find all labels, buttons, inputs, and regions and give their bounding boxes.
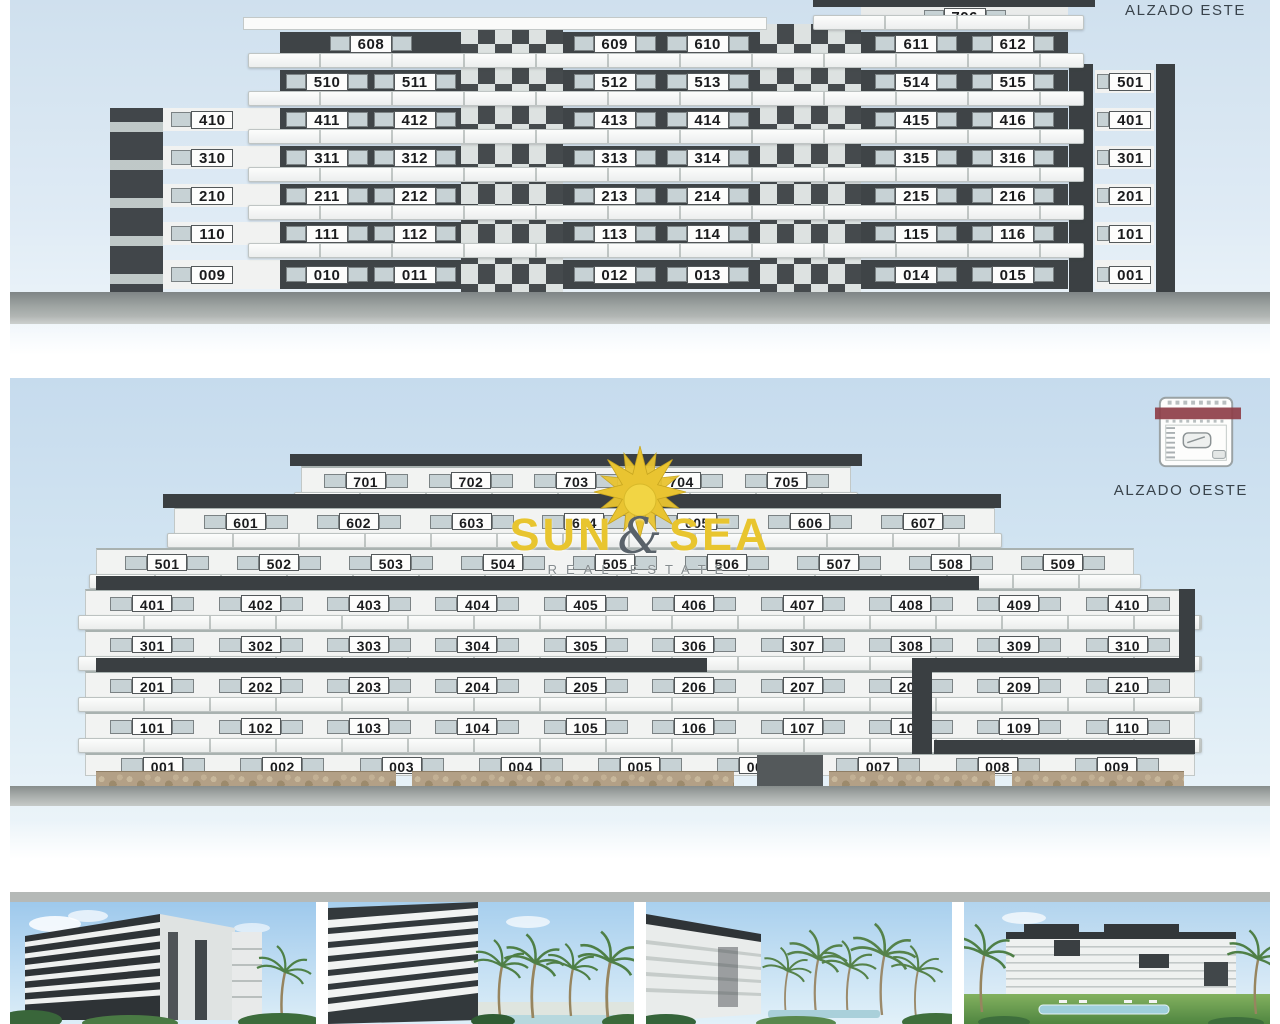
unit-508: 508 — [909, 554, 993, 571]
window-pane — [327, 679, 349, 693]
unit-number-plate: 116 — [992, 225, 1034, 243]
unit-number-plate: 315 — [895, 149, 937, 167]
unit-number-plate: 014 — [895, 266, 937, 284]
east-segment-left-wing: 608 — [280, 32, 461, 55]
unit-number-plate: 201 — [132, 677, 172, 694]
unit-105: 105 — [544, 718, 628, 735]
unit-number-plate: 601 — [226, 513, 266, 530]
window-pane — [386, 474, 408, 488]
unit-211: 211 — [286, 187, 368, 205]
window-pane — [636, 188, 656, 203]
east-segment-right-wing: 514515 — [861, 70, 1069, 93]
unit-104: 104 — [435, 718, 519, 735]
unit-210: 210 — [171, 187, 233, 205]
unit-number-plate: 013 — [687, 266, 729, 284]
window-pane — [172, 597, 194, 611]
unit-number-plate: 415 — [895, 111, 937, 129]
east-floor-H: 009010011012013014015001 — [110, 258, 1175, 292]
unit-303: 303 — [327, 636, 411, 653]
window-pane — [1083, 556, 1105, 570]
unit-number-plate: 513 — [687, 73, 729, 91]
unit-number-plate: 409 — [999, 595, 1039, 612]
unit-number-plate: 311 — [306, 149, 348, 167]
unit-number-plate: 510 — [306, 73, 348, 91]
window-pane — [1034, 226, 1054, 241]
window-pane — [667, 74, 687, 89]
east-floor-E: 310311312313314315316301 — [110, 144, 1175, 182]
east-segment-center: 113114 — [563, 222, 760, 245]
unit-number-plate: 101 — [132, 718, 172, 735]
window-pane — [1097, 267, 1109, 282]
window-pane — [219, 638, 241, 652]
unit-number-plate: 416 — [992, 111, 1034, 129]
window-pane — [598, 758, 620, 772]
window-pane — [931, 720, 953, 734]
east-elevation-title: ALZADO ESTE — [1125, 2, 1246, 19]
unit-304: 304 — [435, 636, 519, 653]
window-pane — [931, 679, 953, 693]
unit-305: 305 — [544, 636, 628, 653]
window-pane — [389, 638, 411, 652]
unit-205: 205 — [544, 677, 628, 694]
unit-503: 503 — [349, 554, 433, 571]
window-pane — [869, 679, 891, 693]
unit-216: 216 — [972, 187, 1054, 205]
render-photo-garden-view — [646, 902, 952, 1024]
unit-114: 114 — [667, 225, 749, 243]
unit-number-plate: 411 — [306, 111, 348, 129]
window-pane — [652, 638, 674, 652]
unit-706: 706 — [924, 8, 1006, 26]
unit-number-plate: 009 — [191, 266, 233, 284]
unit-301: 301 — [110, 636, 194, 653]
unit-number-plate: 609 — [594, 35, 636, 53]
unit-number-plate: 308 — [891, 636, 931, 653]
unit-203: 203 — [327, 677, 411, 694]
unit-number-plate: 408 — [891, 595, 931, 612]
unit-number-plate: 012 — [594, 266, 636, 284]
window-pane — [574, 74, 594, 89]
window-pane — [497, 638, 519, 652]
window-pane — [875, 267, 895, 282]
unit-number-plate: 213 — [594, 187, 636, 205]
unit-number-plate: 404 — [457, 595, 497, 612]
window-pane — [972, 74, 992, 89]
window-pane — [436, 74, 456, 89]
unit-number-plate: 207 — [783, 677, 823, 694]
window-pane — [1075, 758, 1097, 772]
window-pane — [1097, 226, 1109, 241]
window-pane — [1097, 188, 1109, 203]
unit-number-plate: 001 — [1109, 266, 1151, 284]
window-pane — [836, 758, 858, 772]
unit-number-plate: 512 — [594, 73, 636, 91]
unit-number-plate: 010 — [306, 266, 348, 284]
unit-number-plate: 509 — [1043, 554, 1083, 571]
east-elevation-panel: ALZADO ESTE 7066086096106116125105115125… — [10, 0, 1270, 362]
window-pane — [430, 515, 452, 529]
unit-number-plate: 303 — [349, 636, 389, 653]
west-ground-fade — [10, 820, 1270, 866]
west-floor-2: 201202203204205206207208209210 — [85, 671, 1195, 712]
window-pane — [937, 226, 957, 241]
unit-number-plate: 203 — [349, 677, 389, 694]
window-pane — [110, 638, 132, 652]
window-pane — [1097, 112, 1109, 127]
unit-402: 402 — [219, 595, 303, 612]
unit-number-plate: 310 — [1108, 636, 1148, 653]
window-pane — [429, 474, 451, 488]
window-pane — [972, 112, 992, 127]
unit-213: 213 — [574, 187, 656, 205]
unit-405: 405 — [544, 595, 628, 612]
window-pane — [667, 188, 687, 203]
window-pane — [574, 36, 594, 51]
unit-number-plate: 502 — [259, 554, 299, 571]
unit-215: 215 — [875, 187, 957, 205]
east-segment-left-tower: 310 — [163, 146, 288, 169]
unit-number-plate: 406 — [674, 595, 714, 612]
window-pane — [807, 474, 829, 488]
east-segment-right-wing: 415416 — [861, 108, 1069, 131]
window-pane — [281, 720, 303, 734]
unit-number-plate: 215 — [895, 187, 937, 205]
window-pane — [636, 74, 656, 89]
window-pane — [299, 556, 321, 570]
unit-number-plate: 114 — [687, 225, 729, 243]
west-floor-face: 201202203204205206207208209210 — [85, 671, 1195, 699]
unit-608: 608 — [330, 35, 412, 53]
window-pane — [1148, 679, 1170, 693]
east-segment-left-wing: 211212 — [280, 184, 461, 207]
window-pane — [436, 267, 456, 282]
east-segment-center: 609610 — [563, 32, 760, 55]
window-pane — [219, 679, 241, 693]
window-pane — [729, 226, 749, 241]
unit-202: 202 — [219, 677, 303, 694]
west-dark-band-2-right — [912, 658, 1195, 672]
window-pane — [379, 515, 401, 529]
unit-number-plate: 105 — [566, 718, 606, 735]
window-pane — [977, 720, 999, 734]
exterior-render-photos — [10, 902, 1270, 1024]
unit-number-plate: 702 — [451, 472, 491, 489]
window-pane — [667, 226, 687, 241]
window-pane — [636, 36, 656, 51]
unit-110: 110 — [1086, 718, 1170, 735]
east-segment-right-wing: 611612 — [861, 32, 1069, 55]
unit-701: 701 — [324, 472, 408, 489]
unit-415: 415 — [875, 111, 957, 129]
window-pane — [729, 112, 749, 127]
window-pane — [875, 36, 895, 51]
window-pane — [606, 638, 628, 652]
unit-number-plate: 102 — [241, 718, 281, 735]
window-pane — [240, 758, 262, 772]
window-pane — [281, 679, 303, 693]
unit-014: 014 — [875, 266, 957, 284]
balcony-slab — [78, 697, 1202, 712]
unit-410: 410 — [171, 111, 233, 129]
window-pane — [1018, 758, 1040, 772]
west-right-edge-band — [1179, 589, 1195, 672]
unit-514: 514 — [875, 73, 957, 91]
logo-wordmark: SUN&SEA — [490, 508, 790, 558]
east-segment-right-tower: 101 — [1095, 222, 1154, 245]
window-pane — [544, 720, 566, 734]
window-pane — [348, 112, 368, 127]
window-pane — [729, 36, 749, 51]
unit-407: 407 — [761, 595, 845, 612]
unit-number-plate: 113 — [594, 225, 636, 243]
east-segment-right-tower: 001 — [1095, 260, 1154, 289]
unit-number-plate: 401 — [132, 595, 172, 612]
east-floor-G: 110111112113114115116101 — [110, 220, 1175, 258]
unit-301: 301 — [1097, 149, 1151, 167]
window-pane — [497, 597, 519, 611]
window-pane — [1097, 74, 1109, 89]
unit-number-plate: 305 — [566, 636, 606, 653]
window-pane — [544, 638, 566, 652]
unit-number-plate: 607 — [903, 513, 943, 530]
window-pane — [172, 638, 194, 652]
window-pane — [977, 597, 999, 611]
unit-507: 507 — [797, 554, 881, 571]
east-segment-left-tower: 410 — [163, 108, 288, 131]
unit-number-plate: 115 — [895, 225, 937, 243]
east-segment-center: 413414 — [563, 108, 760, 131]
unit-number-plate: 515 — [992, 73, 1034, 91]
east-ground-fade — [10, 316, 1270, 362]
window-pane — [327, 720, 349, 734]
unit-011: 011 — [374, 266, 456, 284]
logo-word-sun: SUN — [509, 509, 613, 560]
unit-010: 010 — [286, 266, 368, 284]
west-floor-4: 401402403404405406407408409410 — [85, 589, 1195, 630]
unit-number-plate: 309 — [999, 636, 1039, 653]
unit-111: 111 — [286, 225, 368, 243]
window-pane — [636, 150, 656, 165]
window-pane — [281, 597, 303, 611]
unit-009: 009 — [171, 266, 233, 284]
unit-number-plate: 316 — [992, 149, 1034, 167]
window-pane — [436, 150, 456, 165]
window-pane — [574, 188, 594, 203]
window-pane — [436, 226, 456, 241]
unit-316: 316 — [972, 149, 1054, 167]
window-pane — [1039, 638, 1061, 652]
window-pane — [286, 150, 306, 165]
window-pane — [667, 112, 687, 127]
window-pane — [479, 758, 501, 772]
window-pane — [435, 720, 457, 734]
window-pane — [636, 267, 656, 282]
window-pane — [183, 758, 205, 772]
unit-number-plate: 301 — [132, 636, 172, 653]
window-pane — [1039, 679, 1061, 693]
window-pane — [110, 597, 132, 611]
unit-612: 612 — [972, 35, 1054, 53]
window-pane — [436, 112, 456, 127]
unit-number-plate: 307 — [783, 636, 823, 653]
window-pane — [392, 36, 412, 51]
unit-number-plate: 413 — [594, 111, 636, 129]
window-pane — [281, 638, 303, 652]
window-pane — [972, 226, 992, 241]
unit-number-plate: 407 — [783, 595, 823, 612]
unit-number-plate: 205 — [566, 677, 606, 694]
window-pane — [1148, 720, 1170, 734]
unit-number-plate: 610 — [687, 35, 729, 53]
window-pane — [761, 597, 783, 611]
unit-208: 208 — [869, 677, 953, 694]
render-photo-corner-view — [10, 902, 316, 1024]
unit-409: 409 — [977, 595, 1061, 612]
unit-311: 311 — [286, 149, 368, 167]
window-pane — [171, 226, 191, 241]
unit-602: 602 — [317, 513, 401, 530]
window-pane — [286, 74, 306, 89]
window-pane — [823, 597, 845, 611]
window-pane — [937, 74, 957, 89]
window-pane — [204, 515, 226, 529]
unit-number-plate: 201 — [1109, 187, 1151, 205]
unit-number-plate: 412 — [394, 111, 436, 129]
west-dark-band-4 — [96, 576, 978, 590]
unit-number-plate: 701 — [346, 472, 386, 489]
east-segment-center: 012013 — [563, 260, 760, 289]
unit-201: 201 — [110, 677, 194, 694]
unit-number-plate: 501 — [147, 554, 187, 571]
east-segment-left-wing: 411412 — [280, 108, 461, 131]
window-pane — [374, 112, 394, 127]
unit-501: 501 — [1097, 73, 1151, 91]
unit-209: 209 — [977, 677, 1061, 694]
unit-309: 309 — [977, 636, 1061, 653]
photo-strip-divider — [10, 892, 1270, 902]
window-pane — [909, 556, 931, 570]
window-pane — [924, 10, 944, 25]
east-roof-slab — [243, 17, 767, 30]
unit-102: 102 — [219, 718, 303, 735]
east-segment-right-tower: 401 — [1095, 108, 1154, 131]
window-pane — [667, 36, 687, 51]
window-pane — [172, 720, 194, 734]
unit-number-plate: 706 — [944, 8, 986, 26]
window-pane — [171, 188, 191, 203]
window-pane — [1021, 556, 1043, 570]
unit-number-plate: 216 — [992, 187, 1034, 205]
unit-number-plate: 110 — [191, 225, 233, 243]
unit-212: 212 — [374, 187, 456, 205]
unit-number-plate: 603 — [452, 513, 492, 530]
unit-413: 413 — [574, 111, 656, 129]
window-pane — [956, 758, 978, 772]
window-pane — [544, 597, 566, 611]
unit-012: 012 — [574, 266, 656, 284]
unit-number-plate: 306 — [674, 636, 714, 653]
window-pane — [931, 597, 953, 611]
east-floor-rows: 7066086096106116125105115125135145155014… — [110, 0, 1175, 292]
window-pane — [574, 150, 594, 165]
window-pane — [729, 188, 749, 203]
window-pane — [348, 267, 368, 282]
window-pane — [435, 597, 457, 611]
unit-609: 609 — [574, 35, 656, 53]
east-segment-right-wing: 115116 — [861, 222, 1069, 245]
window-pane — [937, 36, 957, 51]
unit-115: 115 — [875, 225, 957, 243]
window-pane — [606, 597, 628, 611]
east-segment-left-tower: 009 — [163, 260, 288, 289]
unit-310: 310 — [171, 149, 233, 167]
unit-112: 112 — [374, 225, 456, 243]
window-pane — [286, 267, 306, 282]
window-pane — [869, 597, 891, 611]
unit-412: 412 — [374, 111, 456, 129]
unit-number-plate: 111 — [306, 225, 348, 243]
window-pane — [1086, 720, 1108, 734]
unit-number-plate: 302 — [241, 636, 281, 653]
unit-116: 116 — [972, 225, 1054, 243]
window-pane — [348, 226, 368, 241]
unit-406: 406 — [652, 595, 736, 612]
window-pane — [1086, 679, 1108, 693]
window-pane — [1034, 112, 1054, 127]
window-pane — [1137, 758, 1159, 772]
window-pane — [374, 150, 394, 165]
window-pane — [422, 758, 444, 772]
window-pane — [986, 10, 1006, 25]
window-pane — [714, 597, 736, 611]
window-pane — [937, 267, 957, 282]
unit-number-plate: 211 — [306, 187, 348, 205]
unit-315: 315 — [875, 149, 957, 167]
window-pane — [286, 226, 306, 241]
unit-number-plate: 204 — [457, 677, 497, 694]
unit-108: 108 — [869, 718, 953, 735]
window-pane — [636, 226, 656, 241]
unit-201: 201 — [1097, 187, 1151, 205]
unit-number-plate: 401 — [1109, 111, 1151, 129]
window-pane — [574, 112, 594, 127]
unit-number-plate: 501 — [1109, 73, 1151, 91]
unit-number-plate: 507 — [819, 554, 859, 571]
unit-number-plate: 310 — [191, 149, 233, 167]
unit-306: 306 — [652, 636, 736, 653]
east-segment-left-wing: 311312 — [280, 146, 461, 169]
east-segment-left-tower: 210 — [163, 184, 288, 207]
east-segment-right-tower: 501 — [1095, 70, 1154, 93]
unit-number-plate: 304 — [457, 636, 497, 653]
west-ground-line — [10, 786, 1270, 806]
window-pane — [435, 679, 457, 693]
unit-number-plate: 103 — [349, 718, 389, 735]
window-pane — [636, 112, 656, 127]
window-pane — [121, 758, 143, 772]
render-photo-balconies-palms — [328, 902, 634, 1024]
window-pane — [389, 679, 411, 693]
window-pane — [761, 720, 783, 734]
unit-number-plate: 410 — [191, 111, 233, 129]
window-pane — [574, 267, 594, 282]
window-pane — [1034, 74, 1054, 89]
window-pane — [971, 556, 993, 570]
west-dark-band-0-right — [934, 740, 1195, 754]
east-segment-left-tower: 110 — [163, 222, 288, 245]
window-pane — [348, 150, 368, 165]
unit-number-plate: 410 — [1108, 595, 1148, 612]
